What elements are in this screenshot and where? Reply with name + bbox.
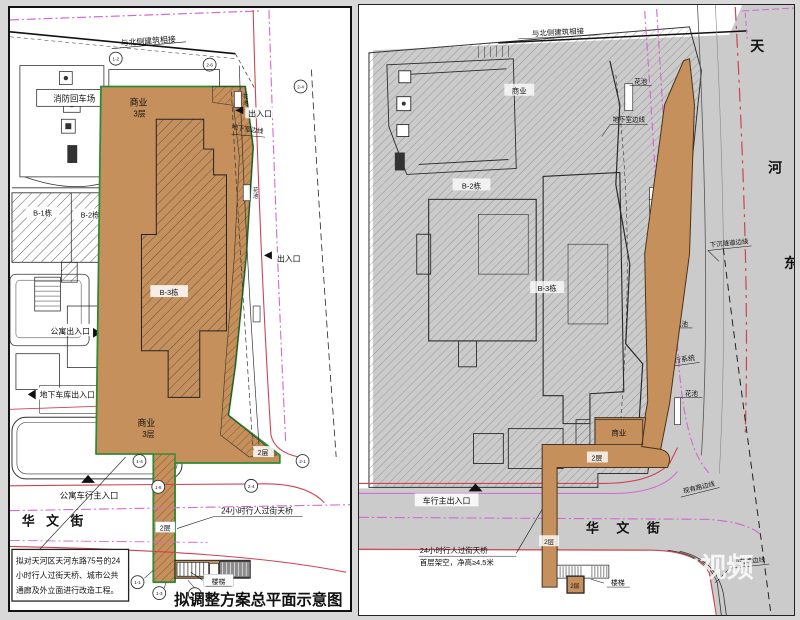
b3-label: B-3栋 — [150, 285, 188, 297]
arrow-left-icon — [28, 389, 36, 399]
nvideo-watermark: N视频 — [640, 546, 754, 585]
svg-text:天: 天 — [750, 38, 764, 54]
svg-text:2层: 2层 — [591, 455, 602, 463]
svg-text:花: 花 — [253, 186, 259, 194]
svg-text:2层: 2层 — [258, 449, 269, 457]
commercial-top-label: 商业 — [504, 84, 534, 96]
svg-text:池: 池 — [243, 99, 249, 107]
svg-text:河: 河 — [768, 159, 782, 175]
axis-bubble: 1-3 — [156, 591, 163, 596]
level2-landing-label: 2层 — [570, 583, 579, 590]
nvideo-logo-icon — [640, 551, 674, 581]
commercial-mid-label: 商业 — [611, 428, 626, 438]
b2-label: B-2栋 — [81, 210, 100, 220]
axis-bubble: 2-1 — [299, 459, 306, 464]
svg-text:拟对天河区天河东路75号的24: 拟对天河区天河东路75号的24 — [16, 555, 121, 565]
svg-text:B-3栋: B-3栋 — [538, 283, 558, 293]
right-plan-svg: 与北侧建筑相接 — [359, 5, 794, 615]
footbridge-band — [153, 454, 175, 582]
north-boundary: 与北侧建筑相接 — [10, 32, 254, 88]
svg-text:消防回车场: 消防回车场 — [53, 93, 95, 103]
svg-text:楼梯: 楼梯 — [611, 578, 625, 587]
svg-text:车行主出入口: 车行主出入口 — [423, 495, 471, 505]
planter-label: 花池 — [685, 389, 698, 398]
level2-arm-label: 2层 — [587, 452, 608, 463]
road-entrance-mid: 出入口 — [264, 251, 304, 263]
svg-text:花: 花 — [243, 92, 249, 100]
note-leader-line — [40, 457, 126, 549]
apartment-entrance: 公寓出入口 — [48, 324, 101, 338]
axis-bubble: 1-2 — [112, 57, 119, 62]
note-box: 拟对天河区天河东路75号的24 小时行人过街天桥、城市公共 通廊及外立面进行改造… — [12, 549, 129, 601]
svg-text:小时行人过街天桥、城市公共: 小时行人过街天桥、城市公共 — [16, 570, 119, 580]
small-hatched-block — [576, 420, 590, 445]
footbridge-label: 24小时行人过街天桥 — [177, 506, 303, 529]
boundary-line-magenta — [10, 11, 259, 20]
left-plan-panel: 与北侧建筑相接 1-2 2-6 2-4 — [8, 6, 352, 612]
svg-text:地下室边线: 地下室边线 — [613, 115, 646, 124]
left-plan-svg: 与北侧建筑相接 1-2 2-6 2-4 — [10, 8, 350, 610]
svg-text:2层: 2层 — [544, 538, 555, 546]
svg-text:池: 池 — [253, 192, 259, 200]
svg-text:2层: 2层 — [160, 525, 171, 533]
street-name-right: 华 文 街 — [586, 520, 667, 535]
commercial-top-label: 商业 — [130, 96, 148, 107]
screenshot-root: 与北侧建筑相接 1-2 2-6 2-4 — [0, 0, 800, 620]
axis-bubble: 2-4 — [248, 484, 255, 489]
watermark-text: N视频 — [680, 546, 754, 585]
b3-label: B-3栋 — [530, 281, 564, 293]
planter-label: 花池 — [634, 77, 647, 86]
commercial-bottom-label: 商业 — [138, 417, 156, 428]
axis-bubble: 1-4 — [136, 459, 143, 464]
svg-text:首层架空，净高≥4.5米: 首层架空，净高≥4.5米 — [420, 557, 495, 567]
axis-bubble: 2-6 — [206, 63, 213, 68]
axis-bubble: 1-1 — [134, 580, 141, 585]
svg-text:公寓车行主入口: 公寓车行主入口 — [60, 491, 119, 501]
svg-text:楼梯: 楼梯 — [212, 577, 226, 586]
svg-text:24小时行人过街天桥: 24小时行人过街天桥 — [221, 506, 293, 516]
level2-right-label: 2层 — [253, 446, 274, 457]
b2-label: B-2栋 — [453, 178, 491, 190]
svg-text:商业: 商业 — [512, 86, 527, 96]
floors3-top-label: 3层 — [133, 109, 145, 118]
level2-bridge-label: 2层 — [155, 522, 175, 533]
svg-text:通廊及外立面进行改造工程。: 通廊及外立面进行改造工程。 — [16, 585, 119, 595]
svg-text:B-2栋: B-2栋 — [462, 180, 482, 190]
right-plan-panel: 与北侧建筑相接 — [358, 4, 795, 616]
svg-text:B-3栋: B-3栋 — [160, 287, 179, 297]
axis-bubble: 1-8 — [155, 485, 162, 490]
svg-text:出入口: 出入口 — [277, 253, 301, 263]
floors3-bottom-label: 3层 — [142, 430, 154, 439]
street-name-left: 华 文 街 — [22, 514, 87, 529]
svg-text:出入口: 出入口 — [248, 108, 272, 118]
plan-title: 拟调整方案总平面示意图 — [174, 590, 342, 609]
svg-text:东: 东 — [784, 255, 794, 271]
axis-bubble: 2-4 — [297, 84, 304, 89]
b1-label: B-1栋 — [33, 208, 52, 218]
arrow-left-icon — [264, 251, 272, 259]
svg-text:24小时行人过街天桥: 24小时行人过街天桥 — [420, 545, 489, 555]
svg-text:公寓出入口: 公寓出入口 — [51, 326, 90, 336]
svg-text:地下车库出入口: 地下车库出入口 — [40, 389, 95, 399]
level2-bridge-label: 2层 — [539, 535, 559, 546]
north-link-label: 与北侧建筑相接 — [120, 34, 176, 48]
